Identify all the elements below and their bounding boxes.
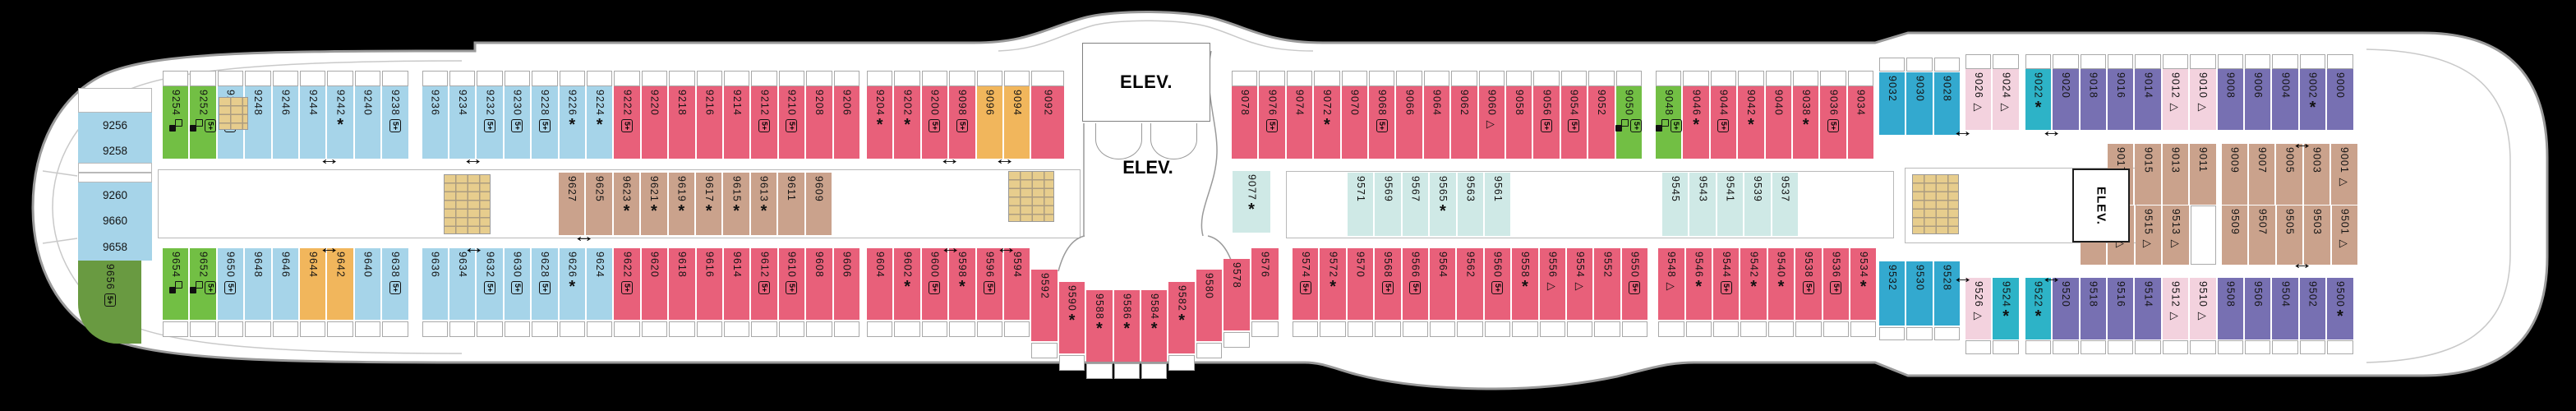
cabin-9246[interactable]: 9246 [273, 86, 298, 159]
cabin-9561[interactable]: 9561 [1485, 173, 1510, 236]
balcony [922, 321, 947, 337]
cabin-9534[interactable]: 9534* [1850, 248, 1876, 320]
cabin-number: 9238 [390, 90, 401, 116]
cabin-9590[interactable]: 9590* [1059, 282, 1085, 353]
cabin-9058[interactable]: 9058 [1506, 86, 1532, 159]
cabin-badges: * [904, 281, 910, 293]
cabin-9648[interactable]: 9648 [245, 248, 270, 320]
badge-5plus-icon: 5+ [205, 119, 216, 132]
cabin-9002[interactable]: 9002* [2300, 69, 2325, 130]
cabin-9013[interactable]: 9013 [2163, 144, 2188, 205]
balcony [1993, 54, 2018, 69]
balcony [1451, 71, 1477, 86]
balcony [1485, 321, 1510, 337]
cabin-9202[interactable]: 9202* [894, 86, 919, 159]
cabin-number: 9058 [1514, 90, 1524, 116]
cabin-9214[interactable]: 9214 [724, 86, 749, 159]
cabin-number: 9566 [1410, 252, 1421, 278]
badge-5plus-icon: 5+ [511, 119, 523, 132]
cabin-9048[interactable]: 90485+ [1656, 86, 1681, 159]
cabin-9560[interactable]: 95605+ [1485, 248, 1510, 320]
cabin-number: 9646 [280, 252, 291, 278]
cabin-9011[interactable]: 9011 [2190, 144, 2215, 205]
balcony [779, 321, 804, 337]
badge-5plus-icon: 5+ [205, 281, 216, 294]
cabin-9611[interactable]: 9611 [778, 173, 804, 235]
cabin-9536[interactable]: 95365+ [1823, 248, 1849, 320]
cabin-number: 9020 [2061, 72, 2071, 99]
cabin-9220[interactable]: 9220 [642, 86, 667, 159]
cabin-9076[interactable]: 90765+ [1259, 86, 1284, 159]
cabin-9524[interactable]: 9524* [1993, 278, 2018, 339]
cabin-9572[interactable]: 9572* [1320, 248, 1345, 320]
cabin-9558[interactable]: 9558* [1512, 248, 1537, 320]
cabin-number: 9644 [307, 252, 318, 278]
balcony [190, 321, 215, 337]
cabin-9628[interactable]: 96285+ [532, 248, 557, 320]
cabin-9642[interactable]: 9642 [327, 248, 353, 320]
balcony [218, 321, 243, 337]
cabin-9072[interactable]: 9072* [1314, 86, 1339, 159]
elevator-fan-door [1095, 123, 1142, 159]
cabin-number: 9552 [1602, 252, 1613, 278]
cabin-number: 9202 [902, 90, 913, 116]
balcony [1251, 321, 1279, 337]
balcony [1848, 71, 1873, 86]
cabin-9621[interactable]: 9621* [641, 173, 666, 235]
balcony [1711, 71, 1736, 86]
cabin-9612[interactable]: 96125+ [751, 248, 776, 320]
cabin-9650[interactable]: 96505+ [218, 248, 243, 320]
cabin-number: 9077 [1247, 174, 1257, 201]
cabin-9620[interactable]: 9620 [642, 248, 667, 320]
cabin-9092[interactable]: 9092 [1031, 86, 1064, 159]
cabin-9501[interactable]: 9501△ [2332, 205, 2357, 265]
cabin-9066[interactable]: 9066 [1396, 86, 1422, 159]
cabin-9044[interactable]: 90445+ [1711, 86, 1736, 159]
cabin-9252[interactable]: 92525+ [190, 86, 215, 159]
balcony [1232, 71, 1257, 86]
cabin-badges: 5+ [1827, 119, 1839, 132]
cabin-9606[interactable]: 9606 [834, 248, 859, 320]
cabin-number: 9570 [1355, 252, 1366, 278]
cabin-9204[interactable]: 9204* [867, 86, 892, 159]
cabin-9040[interactable]: 9040 [1766, 86, 1791, 159]
cabin-9565[interactable]: 9565* [1430, 173, 1455, 236]
cabin-9624[interactable]: 9624 [587, 248, 612, 320]
cabin-9546[interactable]: 9546* [1686, 248, 1712, 320]
cabin-9567[interactable]: 9567 [1403, 173, 1428, 236]
cabin-badges: * [624, 205, 630, 217]
cabin-9576[interactable]: 9576 [1251, 248, 1279, 320]
cabin-9540[interactable]: 9540* [1768, 248, 1794, 320]
cabin-9544[interactable]: 95445+ [1713, 248, 1739, 320]
cabin-9617[interactable]: 9617* [696, 173, 721, 235]
badge-5plus-icon: 5+ [621, 281, 633, 294]
balcony [477, 71, 502, 86]
cabin-9537[interactable]: 9537 [1772, 173, 1798, 236]
cabin-9200[interactable]: 92005+ [922, 86, 947, 159]
cabin-number: 9536 [1831, 252, 1841, 278]
cabin-number: 9094 [1012, 90, 1022, 116]
triangle-icon: △ [2001, 103, 2011, 111]
cabin-9514[interactable]: 9514 [2135, 278, 2160, 339]
cabin-9630[interactable]: 96305+ [505, 248, 530, 320]
cabin-number: 9226 [567, 90, 578, 116]
cabin-9510[interactable]: 9510△ [2190, 278, 2215, 339]
cabin-9615[interactable]: 9615* [723, 173, 749, 235]
cabin-9260[interactable]: 9260 [78, 182, 152, 207]
cabin-number: 9502 [2307, 281, 2318, 307]
cabin-9068[interactable]: 90685+ [1369, 86, 1394, 159]
balcony [724, 71, 749, 86]
cabin-badges: * [1522, 281, 1528, 293]
connecting-stateroom-arrow-icon: ↔ [993, 150, 1016, 168]
cabin-badges: 5+ [758, 119, 770, 132]
cabin-9500[interactable]: 9500* [2327, 278, 2353, 339]
cabin-9608[interactable]: 9608 [806, 248, 832, 320]
balcony [2135, 54, 2160, 69]
cabin-9016[interactable]: 9016 [2108, 69, 2133, 130]
cabin-9232[interactable]: 92325+ [477, 86, 502, 159]
cabin-9020[interactable]: 9020 [2053, 69, 2078, 130]
cabin-9562[interactable]: 9562 [1457, 248, 1482, 320]
cabin-badges: * [877, 119, 883, 131]
connecting-stateroom-arrow-icon: ↔ [939, 239, 961, 256]
cabin-9652[interactable]: 96525+ [190, 248, 215, 320]
cabin-9218[interactable]: 9218 [669, 86, 694, 159]
cabin-number: 9534 [1858, 252, 1869, 278]
asterisk-icon: * [1693, 119, 1699, 131]
cabin-9050[interactable]: 90505+ [1616, 86, 1642, 159]
cabin-9244[interactable]: 9244 [300, 86, 325, 159]
balcony [587, 321, 612, 337]
cabin-9586[interactable]: 9586* [1114, 290, 1140, 362]
cabin-9598[interactable]: 9598* [949, 248, 975, 320]
cabin-number: 9582 [1177, 285, 1187, 312]
balcony [669, 321, 694, 337]
cabin-9646[interactable]: 9646 [273, 248, 298, 320]
cabin-9563[interactable]: 9563 [1458, 173, 1483, 236]
cabin-9054[interactable]: 90545+ [1561, 86, 1587, 159]
balcony [1906, 58, 1932, 72]
cabin-9627[interactable]: 9627 [559, 173, 584, 235]
cabin-9212[interactable]: 92125+ [751, 86, 776, 159]
cabin-number: 9505 [2284, 209, 2295, 235]
cabin-9206[interactable]: 9206 [834, 86, 859, 159]
cabin-9515[interactable]: 9515△ [2136, 205, 2161, 265]
cabin-9574[interactable]: 95745+ [1293, 248, 1318, 320]
cabin-9623[interactable]: 9623* [614, 173, 639, 235]
cabin-9015[interactable]: 9015 [2135, 144, 2160, 205]
cabin-9222[interactable]: 92225+ [614, 86, 639, 159]
cabin-9636[interactable]: 9636 [422, 248, 448, 320]
cabin-9632[interactable]: 96325+ [477, 248, 502, 320]
cabin-number: 9604 [874, 252, 885, 278]
cabin-9001[interactable]: 9001△ [2331, 144, 2357, 205]
cabin-badges: 5+ [539, 281, 551, 294]
cabin-number: 9244 [307, 90, 318, 116]
balcony [560, 71, 585, 86]
badge-5plus-icon: 5+ [1630, 119, 1642, 132]
cabin-badges: 5+ [511, 281, 523, 294]
cabin-9613[interactable]: 9613* [751, 173, 776, 235]
badge-5plus-icon: 5+ [389, 119, 401, 132]
cabin-9006[interactable]: 9006 [2245, 69, 2270, 130]
cabin-9228[interactable]: 92285+ [532, 86, 557, 159]
cabin-9564[interactable]: 9564 [1430, 248, 1455, 320]
cabin-9545[interactable]: 9545 [1662, 173, 1688, 236]
cabin-9018[interactable]: 9018 [2081, 69, 2106, 130]
cabin-9003[interactable]: 9003 [2304, 144, 2329, 205]
cabin-9618[interactable]: 9618 [669, 248, 694, 320]
cabin-number: 9572 [1328, 252, 1339, 278]
cabin-9210[interactable]: 92105+ [779, 86, 804, 159]
cabin-9538[interactable]: 95385+ [1795, 248, 1821, 320]
cabin-9064[interactable]: 9064 [1424, 86, 1449, 159]
cabin-9060[interactable]: 9060△ [1479, 86, 1505, 159]
cabin-9056[interactable]: 90565+ [1533, 86, 1559, 159]
cabin-number: 9022 [2033, 72, 2044, 99]
cabin-9078[interactable]: 9078 [1232, 86, 1257, 159]
cabin-9542[interactable]: 9542* [1740, 248, 1766, 320]
cabin-9096[interactable]: 9096 [977, 86, 1002, 159]
cabin-9512[interactable]: 9512△ [2163, 278, 2188, 339]
badge-5plus-icon: 5+ [104, 293, 116, 307]
balcony [1457, 321, 1482, 337]
balcony [327, 321, 353, 337]
cabin-9600[interactable]: 96005+ [922, 248, 947, 320]
cabin-9238[interactable]: 92385+ [382, 86, 408, 159]
balcony [2163, 54, 2188, 69]
pullman-bed-icon [190, 281, 203, 293]
balcony [1906, 327, 1932, 340]
asterisk-icon: * [1151, 323, 1158, 335]
cabin-9234[interactable]: 9234 [449, 86, 475, 159]
cabin-9616[interactable]: 9616 [697, 248, 722, 320]
cabin-number: 9626 [567, 252, 578, 278]
connecting-stateroom-arrow-icon: ↔ [2291, 255, 2313, 272]
cabin-number: 9212 [759, 90, 770, 116]
cabin-9552[interactable]: 9552 [1594, 248, 1620, 320]
cabin-9014[interactable]: 9014 [2135, 69, 2160, 130]
cabin-9506[interactable]: 9506 [2245, 278, 2270, 339]
cabin-9568[interactable]: 95685+ [1375, 248, 1400, 320]
cabin-9580[interactable]: 9580 [1196, 270, 1222, 341]
cabin-9570[interactable]: 9570 [1348, 248, 1373, 320]
cabin-9012[interactable]: 9012△ [2163, 69, 2188, 130]
cabin-number: 9532 [1887, 265, 1897, 291]
asterisk-icon: * [1248, 204, 1255, 215]
cabin-9022[interactable]: 9022* [2025, 69, 2051, 130]
cabin-9654[interactable]: 9654 [163, 248, 188, 320]
asterisk-icon: * [651, 205, 657, 217]
cabin-9526[interactable]: 9526△ [1965, 278, 1991, 339]
cabin-9026[interactable]: 9026△ [1965, 69, 1991, 130]
balcony [1348, 321, 1373, 337]
cabin-9604[interactable]: 9604 [867, 248, 892, 320]
cabin-9622[interactable]: 96225+ [614, 248, 639, 320]
cabin-9224[interactable]: 9224* [587, 86, 612, 159]
cabin-9522[interactable]: 9522* [2025, 278, 2051, 339]
cabin-9034[interactable]: 9034 [1848, 86, 1873, 159]
cabin-9532[interactable]: 9532 [1879, 261, 1905, 326]
cabin-number: 9506 [2252, 281, 2263, 307]
cabin-9588[interactable]: 9588* [1086, 290, 1112, 362]
cabin-badges: 5+ [1721, 281, 1732, 294]
cabin-number: 9509 [2229, 209, 2240, 235]
cabin-9520[interactable]: 9520 [2053, 278, 2078, 339]
cabin-badges: * [1750, 281, 1757, 293]
cabin-9258[interactable]: 9258 [78, 138, 152, 163]
cabin-9242[interactable]: 9242* [327, 86, 353, 159]
cabin-number: 9046 [1691, 90, 1702, 116]
cabin-number: 9042 [1746, 90, 1757, 116]
cabin-9518[interactable]: 9518 [2081, 278, 2106, 339]
cabin-9008[interactable]: 9008 [2218, 69, 2243, 130]
cabin-9556[interactable]: 9556△ [1540, 248, 1565, 320]
cabin-9594[interactable]: 9594 [1004, 248, 1030, 320]
cabin-9000[interactable]: 9000 [2327, 69, 2353, 130]
cabin-number: 9048 [1663, 90, 1674, 116]
cabin-number: 9606 [841, 252, 852, 278]
cabin-9569[interactable]: 9569 [1375, 173, 1400, 236]
cabin-9619[interactable]: 9619* [669, 173, 694, 235]
cabin-9074[interactable]: 9074 [1287, 86, 1312, 159]
cabin-number: 9650 [225, 252, 236, 278]
cabin-9592[interactable]: 9592 [1031, 270, 1057, 341]
cabin-9077[interactable]: 9077* [1233, 171, 1270, 233]
cabin-9543[interactable]: 9543 [1689, 173, 1715, 236]
cabin-9548[interactable]: 9548△ [1658, 248, 1684, 320]
cabin-9248[interactable]: 9248 [245, 86, 270, 159]
cabin-9042[interactable]: 9042* [1738, 86, 1763, 159]
cabin-badges: 5+ [621, 119, 633, 132]
triangle-icon: △ [1973, 312, 1984, 320]
badge-5plus-icon: 5+ [1568, 119, 1579, 132]
cabin-9052[interactable]: 9052 [1588, 86, 1614, 159]
cabin-9504[interactable]: 9504 [2272, 278, 2297, 339]
cabin-9638[interactable]: 96385+ [382, 248, 408, 320]
cabin-9658[interactable]: 9658 [78, 233, 152, 261]
cabin-number: 9501 [2339, 209, 2350, 235]
cabin-number: 9542 [1749, 252, 1759, 278]
cabin-9507[interactable]: 9507 [2249, 205, 2274, 265]
cabin-9070[interactable]: 9070 [1342, 86, 1367, 159]
asterisk-icon: * [1324, 119, 1330, 131]
cabin-number: 9228 [540, 90, 551, 116]
cabin-9509[interactable]: 9509 [2222, 205, 2247, 265]
cabin-9062[interactable]: 9062 [1451, 86, 1477, 159]
elevator-label: ELEV. [1082, 43, 1210, 122]
connecting-stateroom-arrow-icon: ↔ [995, 239, 1017, 256]
cabin-9009[interactable]: 9009 [2222, 144, 2247, 205]
cabin-9038[interactable]: 9038* [1793, 86, 1818, 159]
cabin-9550[interactable]: 95505+ [1622, 248, 1647, 320]
cabin-9640[interactable]: 9640 [355, 248, 380, 320]
cabin-9530[interactable]: 9530 [1906, 261, 1932, 326]
cabin-9226[interactable]: 9226* [560, 86, 585, 159]
cabin-9644[interactable]: 9644 [300, 248, 325, 320]
cabin-9216[interactable]: 9216 [697, 86, 722, 159]
cabin-9596[interactable]: 95965+ [977, 248, 1002, 320]
unlabeled-cabin-cell[interactable] [2191, 205, 2216, 265]
triangle-icon: △ [2197, 312, 2208, 320]
cabin-9602[interactable]: 9602* [894, 248, 919, 320]
balcony [614, 71, 639, 86]
cabin-9660[interactable]: 9660 [78, 207, 152, 233]
cabin-9508[interactable]: 9508 [2218, 278, 2243, 339]
cabin-9032[interactable]: 9032 [1879, 72, 1905, 135]
cabin-9554[interactable]: 9554△ [1567, 248, 1592, 320]
cabin-number: 9550 [1629, 252, 1640, 278]
cabin-9236[interactable]: 9236 [422, 86, 448, 159]
cabin-9656[interactable]: 96565+ [78, 261, 141, 344]
cabin-9609[interactable]: 9609 [806, 173, 832, 235]
balcony [1114, 363, 1140, 379]
cabin-9539[interactable]: 9539 [1744, 173, 1770, 236]
cabin-9610[interactable]: 96105+ [779, 248, 804, 320]
balcony [1594, 321, 1620, 337]
cabin-number: 9640 [362, 252, 373, 278]
balcony [1820, 71, 1846, 86]
cabin-9024[interactable]: 9024△ [1993, 69, 2018, 130]
cabin-9007[interactable]: 9007 [2249, 144, 2274, 205]
cabin-9004[interactable]: 9004 [2272, 69, 2297, 130]
cabin-9094[interactable]: 9094 [1004, 86, 1030, 159]
cabin-9626[interactable]: 9626* [560, 248, 585, 320]
cabin-9541[interactable]: 9541 [1717, 173, 1743, 236]
cabin-9230[interactable]: 92305+ [505, 86, 530, 159]
cabin-9240[interactable]: 9240 [355, 86, 380, 159]
cabin-9005[interactable]: 9005 [2276, 144, 2302, 205]
balcony [1934, 58, 1960, 72]
balcony [1934, 327, 1960, 340]
cabin-9030[interactable]: 9030 [1906, 72, 1932, 135]
cabin-9502[interactable]: 9502 [2300, 278, 2325, 339]
cabin-number: 9514 [2143, 281, 2154, 307]
cabin-9098[interactable]: 90985+ [949, 86, 975, 159]
cabin-9584[interactable]: 9584* [1141, 290, 1167, 362]
asterisk-icon: * [2310, 102, 2316, 113]
cabin-9516[interactable]: 9516 [2108, 278, 2133, 339]
cabin-9634[interactable]: 9634 [449, 248, 475, 320]
asterisk-icon: * [1803, 119, 1809, 131]
cabin-number: 9612 [759, 252, 770, 278]
cabin-number: 9026 [1973, 72, 1984, 99]
cabin-9208[interactable]: 9208 [806, 86, 832, 159]
badge-5plus-icon: 5+ [929, 119, 940, 132]
cabin-9046[interactable]: 9046* [1683, 86, 1708, 159]
asterisk-icon: * [904, 281, 910, 293]
cabin-9254[interactable]: 9254 [163, 86, 188, 159]
cabin-9566[interactable]: 95665+ [1403, 248, 1428, 320]
badge-5plus-icon: 5+ [1721, 281, 1732, 294]
cabin-9513[interactable]: 9513△ [2163, 205, 2188, 265]
cabin-9571[interactable]: 9571 [1348, 173, 1373, 236]
balcony [834, 321, 859, 337]
cabin-9625[interactable]: 9625 [586, 173, 611, 235]
cabin-9010[interactable]: 9010△ [2190, 69, 2215, 130]
cabin-9036[interactable]: 90365+ [1820, 86, 1846, 159]
cabin-9256[interactable]: 9256 [78, 113, 152, 138]
cabin-9614[interactable]: 9614 [724, 248, 749, 320]
cabin-badges: △ [2199, 311, 2207, 321]
cabin-9582[interactable]: 9582* [1168, 282, 1194, 353]
balcony [2025, 340, 2051, 354]
cabin-number: 9028 [1942, 76, 1952, 102]
cabin-9578[interactable]: 9578 [1223, 259, 1249, 330]
